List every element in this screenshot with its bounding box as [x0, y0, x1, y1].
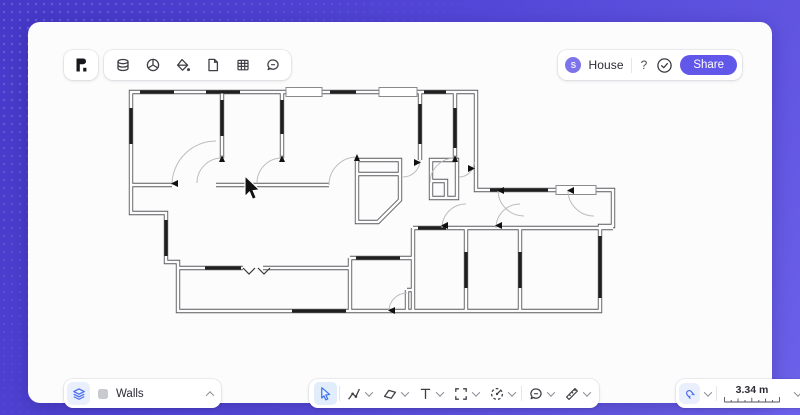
- chat-icon[interactable]: [264, 57, 281, 74]
- draw-tool-button[interactable]: [342, 386, 376, 402]
- comment-tool-button[interactable]: [524, 386, 558, 402]
- chevron-down-icon[interactable]: [704, 388, 712, 396]
- chevron-down-icon[interactable]: [472, 388, 480, 396]
- divider: [339, 386, 340, 401]
- chevron-down-icon[interactable]: [508, 388, 516, 396]
- solids-icon[interactable]: [144, 57, 161, 74]
- scale-value: 3.34 m: [736, 385, 769, 395]
- workspace-avatar[interactable]: S: [565, 57, 581, 73]
- app-window: S House ? Share Walls: [28, 22, 772, 403]
- divider: [716, 386, 717, 401]
- text-tool-button[interactable]: [414, 386, 447, 401]
- chevron-down-icon[interactable]: [794, 388, 800, 396]
- shape-tool-button[interactable]: [378, 386, 412, 402]
- chevron-down-icon[interactable]: [436, 388, 444, 396]
- component-tool-button[interactable]: [485, 386, 519, 402]
- page-icon[interactable]: [204, 57, 221, 74]
- chevron-down-icon[interactable]: [583, 388, 591, 396]
- document-panel: S House ? Share: [558, 50, 742, 80]
- window-casings: [286, 88, 596, 195]
- plan-windows: [131, 92, 600, 311]
- app-root: { "app": { "name": "rayon-floor-plan-edi…: [0, 0, 800, 415]
- sync-check-icon[interactable]: [656, 57, 673, 74]
- share-button[interactable]: Share: [680, 55, 737, 75]
- layers-panel[interactable]: Walls: [64, 379, 221, 408]
- scale-ruler: [724, 396, 780, 403]
- snap-magnet-icon[interactable]: [679, 383, 700, 404]
- select-tool-button[interactable]: [314, 382, 337, 405]
- chevron-down-icon[interactable]: [365, 388, 373, 396]
- divider: [521, 386, 522, 401]
- floor-plan-drawing: [131, 88, 613, 315]
- walls-layer-icon[interactable]: [67, 382, 90, 405]
- measure-tool-button[interactable]: [560, 386, 594, 402]
- help-button[interactable]: ?: [639, 58, 650, 72]
- frame-tool-button[interactable]: [449, 386, 483, 402]
- tools-toolbar: [309, 379, 599, 408]
- layers-icon[interactable]: [114, 57, 131, 74]
- rayon-logo-icon[interactable]: [73, 57, 89, 73]
- chevron-up-icon[interactable]: [206, 391, 214, 399]
- logo-panel: [64, 50, 98, 80]
- document-title[interactable]: House: [588, 58, 623, 72]
- divider: [631, 58, 632, 73]
- scale-readout[interactable]: 3.34 m: [724, 385, 780, 403]
- table-icon[interactable]: [234, 57, 251, 74]
- paint-bucket-icon[interactable]: [174, 57, 191, 74]
- layer-color-swatch[interactable]: [98, 389, 108, 399]
- scale-panel: 3.34 m: [676, 379, 800, 408]
- plan-door-markers: [171, 154, 574, 314]
- top-toolbar: [104, 50, 291, 80]
- active-layer-label: Walls: [116, 388, 144, 400]
- chevron-down-icon[interactable]: [401, 388, 409, 396]
- chevron-down-icon[interactable]: [547, 388, 555, 396]
